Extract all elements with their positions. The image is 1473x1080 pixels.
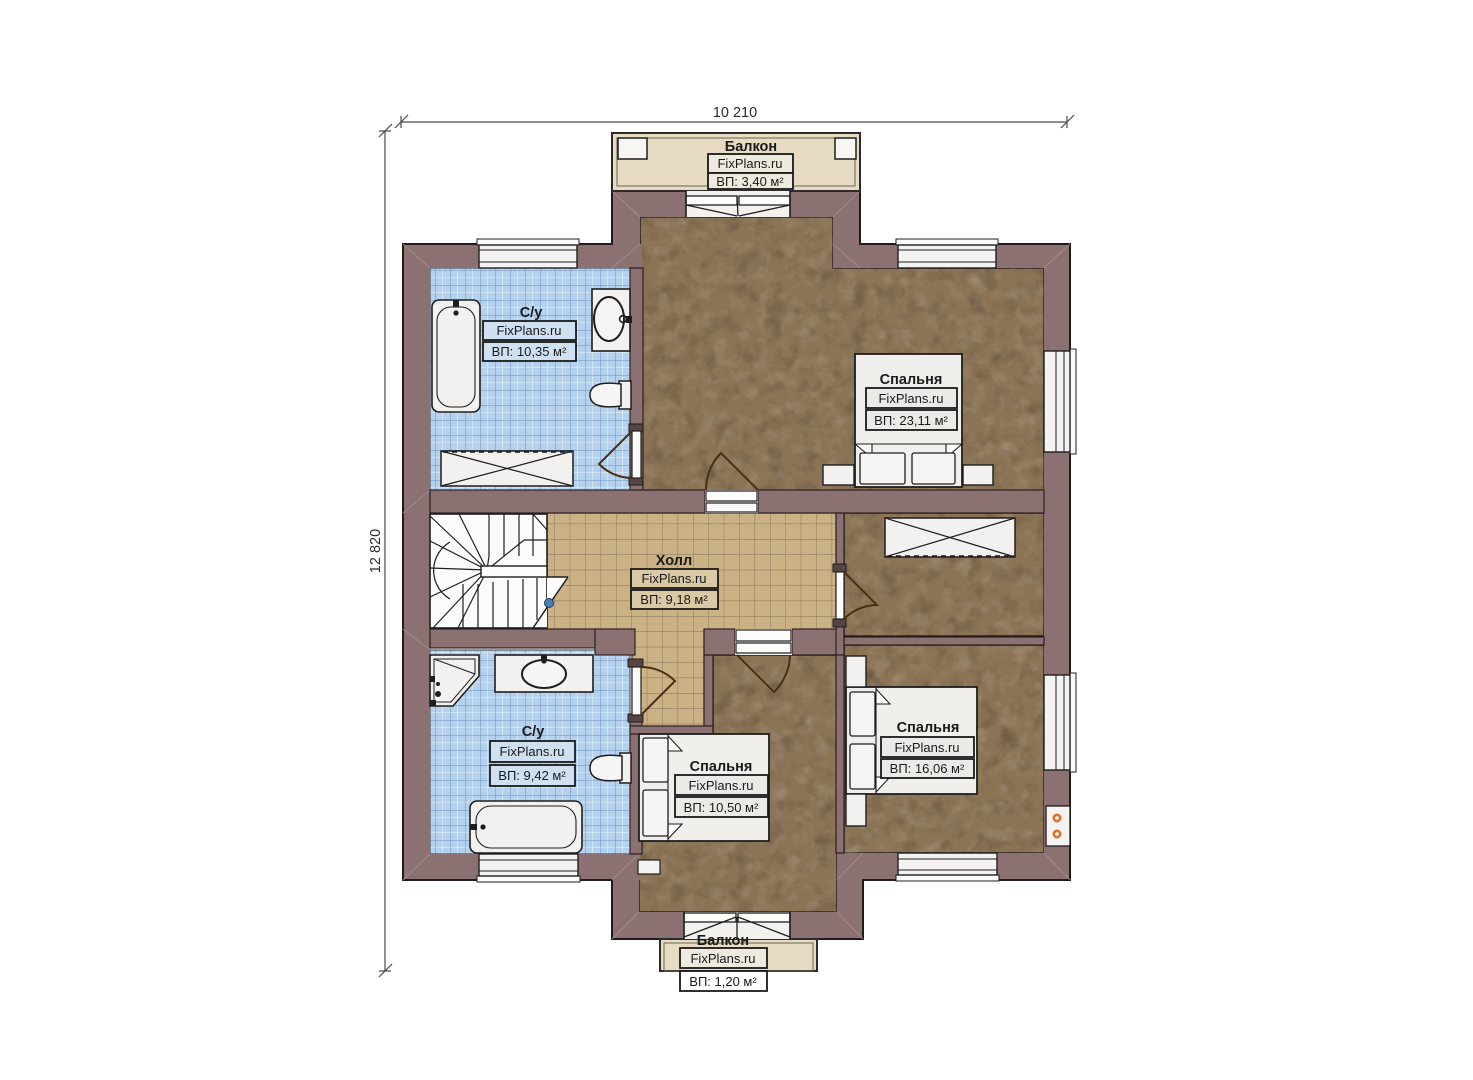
svg-text:10 210: 10 210 xyxy=(713,105,757,121)
svg-text:С/у: С/у xyxy=(520,305,543,321)
svg-text:FixPlans.ru: FixPlans.ru xyxy=(894,740,959,755)
svg-text:Балкон: Балкон xyxy=(697,933,749,949)
svg-text:FixPlans.ru: FixPlans.ru xyxy=(690,951,755,966)
svg-text:Спальня: Спальня xyxy=(897,720,960,736)
svg-text:Спальня: Спальня xyxy=(690,759,753,775)
svg-text:ВП: 9,18 м²: ВП: 9,18 м² xyxy=(640,592,708,607)
svg-text:FixPlans.ru: FixPlans.ru xyxy=(688,778,753,793)
svg-text:FixPlans.ru: FixPlans.ru xyxy=(496,323,561,338)
svg-text:Холл: Холл xyxy=(656,553,692,569)
svg-text:FixPlans.ru: FixPlans.ru xyxy=(717,156,782,171)
svg-text:ВП: 10,35 м²: ВП: 10,35 м² xyxy=(492,344,567,359)
svg-text:ВП: 1,20 м²: ВП: 1,20 м² xyxy=(689,974,757,989)
svg-text:ВП: 23,11 м²: ВП: 23,11 м² xyxy=(874,413,948,428)
svg-text:ВП: 10,50 м²: ВП: 10,50 м² xyxy=(684,800,759,815)
svg-text:FixPlans.ru: FixPlans.ru xyxy=(878,391,943,406)
svg-text:Спальня: Спальня xyxy=(880,372,943,388)
svg-text:FixPlans.ru: FixPlans.ru xyxy=(641,571,706,586)
svg-text:ВП: 3,40 м²: ВП: 3,40 м² xyxy=(716,174,784,189)
svg-text:ВП: 9,42 м²: ВП: 9,42 м² xyxy=(498,768,566,783)
svg-text:С/у: С/у xyxy=(522,724,545,740)
svg-text:Балкон: Балкон xyxy=(725,139,777,155)
svg-text:FixPlans.ru: FixPlans.ru xyxy=(499,744,564,759)
svg-text:12 820: 12 820 xyxy=(368,529,384,573)
svg-text:ВП: 16,06 м²: ВП: 16,06 м² xyxy=(890,761,965,776)
